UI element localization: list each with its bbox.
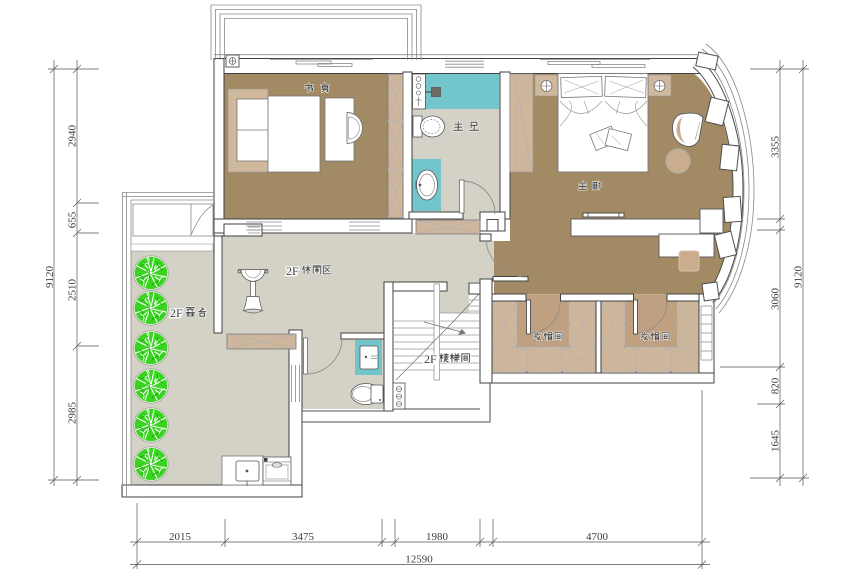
svg-text:2940: 2940 [67, 125, 79, 148]
svg-text:2F: 2F [286, 264, 299, 278]
svg-text:655: 655 [67, 211, 79, 228]
svg-text:12590: 12590 [405, 554, 433, 566]
svg-text:9120: 9120 [793, 266, 805, 289]
svg-text:2015: 2015 [169, 531, 192, 543]
svg-text:4700: 4700 [586, 531, 609, 543]
svg-text:3060: 3060 [770, 288, 782, 311]
svg-text:1980: 1980 [426, 531, 449, 543]
svg-text:2985: 2985 [67, 402, 79, 425]
svg-text:9120: 9120 [44, 266, 56, 289]
svg-text:2510: 2510 [67, 279, 79, 302]
svg-text:820: 820 [770, 377, 782, 394]
svg-text:1645: 1645 [770, 430, 782, 453]
svg-text:2F: 2F [424, 352, 437, 366]
svg-text:2F: 2F [170, 306, 183, 320]
svg-text:3475: 3475 [292, 531, 315, 543]
svg-text:3355: 3355 [770, 136, 782, 159]
